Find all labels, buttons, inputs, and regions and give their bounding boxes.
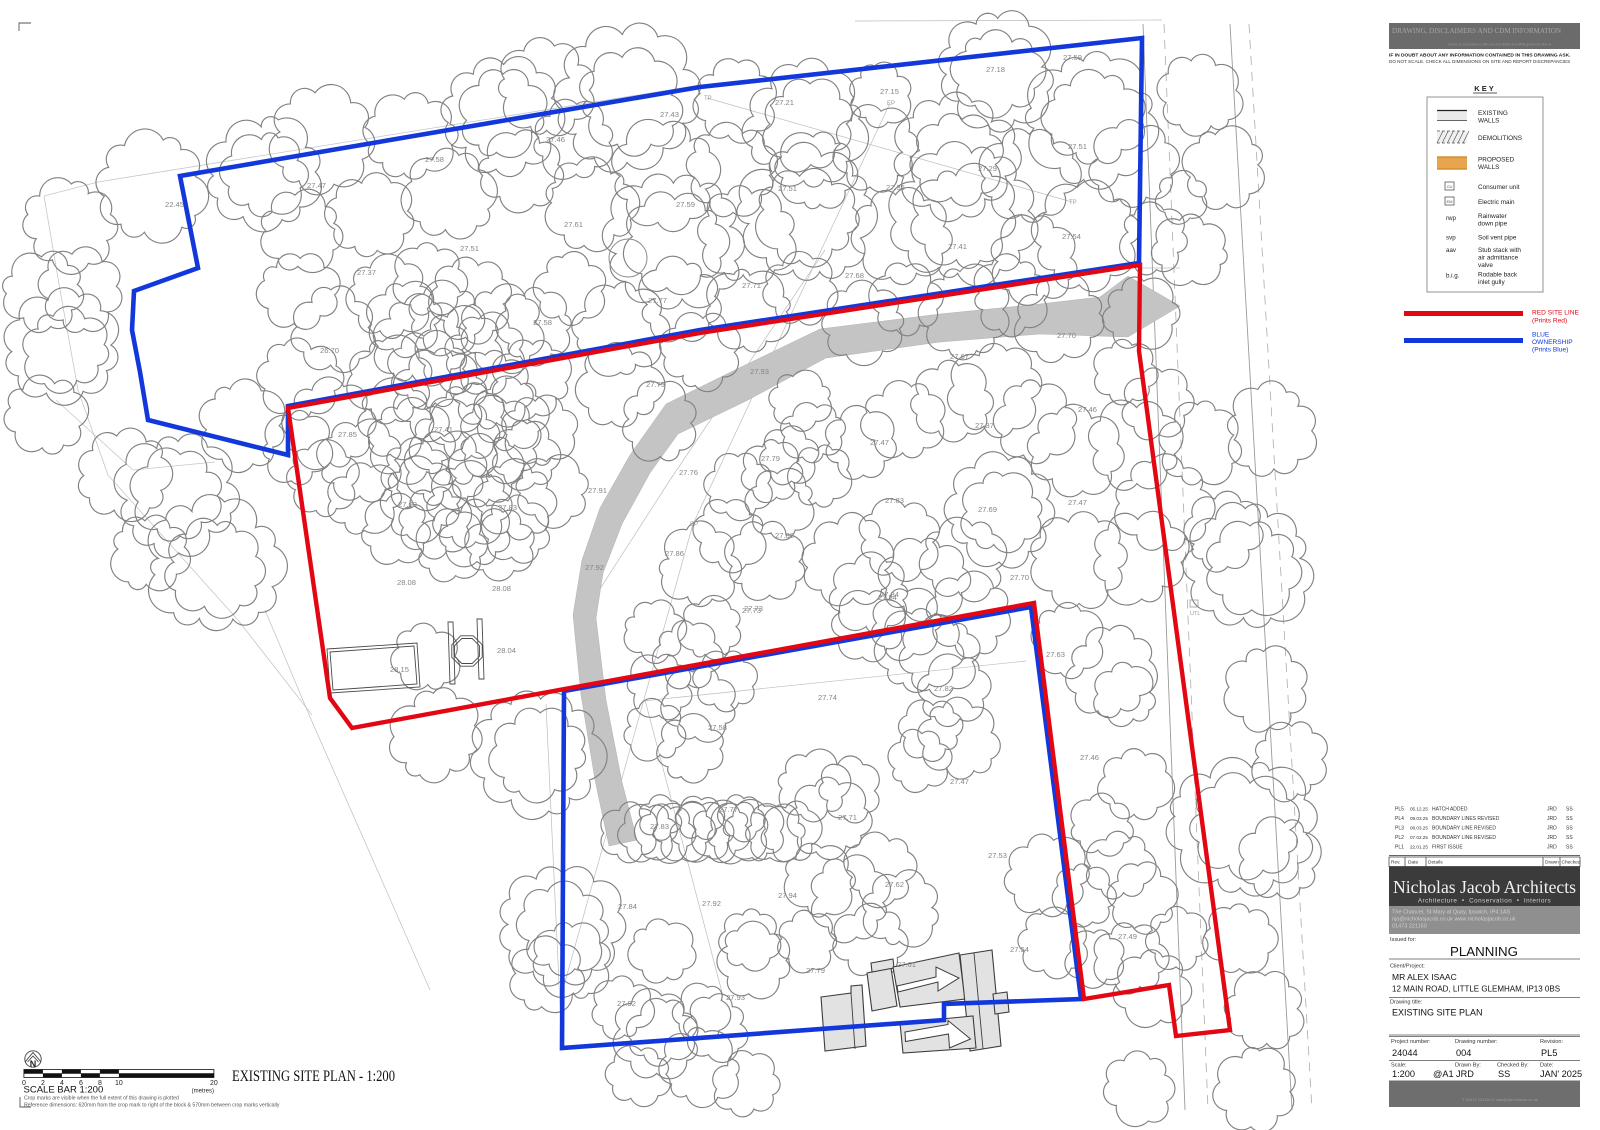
svg-text:26.70: 26.70 <box>320 346 339 355</box>
svg-text:Revision:: Revision: <box>1540 1039 1563 1045</box>
svg-text:27.83: 27.83 <box>498 503 517 512</box>
svg-text:down pipe: down pipe <box>1478 221 1508 228</box>
svg-text:N: N <box>30 1059 37 1069</box>
svg-text:T 01473 221150 E mail@njarch: T 01473 221150 E mail@njarchitects.co.uk <box>1462 1097 1538 1102</box>
svg-text:1:200: 1:200 <box>1392 1069 1415 1079</box>
svg-text:PL3: PL3 <box>1395 826 1404 832</box>
svg-text:27.18: 27.18 <box>986 65 1005 74</box>
svg-text:Issued for:: Issued for: <box>1390 937 1417 943</box>
svg-text:BOUNDARY LINES REVISED: BOUNDARY LINES REVISED <box>1432 816 1500 822</box>
svg-text:27.59: 27.59 <box>1063 53 1082 62</box>
svg-text:27.43: 27.43 <box>660 110 679 119</box>
svg-text:27.88: 27.88 <box>775 531 794 540</box>
svg-text:OWNERSHIP: OWNERSHIP <box>1532 339 1573 346</box>
svg-text:Drawing title:: Drawing title: <box>1390 1000 1423 1006</box>
svg-text:JAN' 2025: JAN' 2025 <box>1540 1069 1582 1079</box>
svg-text:27.79: 27.79 <box>646 380 665 389</box>
svg-text:EXISTING SITE PLAN - 1:200: EXISTING SITE PLAN - 1:200 <box>232 1068 395 1085</box>
svg-text:Project number:: Project number: <box>1391 1039 1431 1045</box>
svg-text:EXISTING SITE PLAN: EXISTING SITE PLAN <box>1392 1008 1483 1018</box>
svg-text:05.12.25: 05.12.25 <box>1410 807 1428 812</box>
svg-text:@A1: @A1 <box>1433 1069 1454 1079</box>
svg-text:27.51: 27.51 <box>778 184 797 193</box>
svg-text:Client/Project:: Client/Project: <box>1390 964 1425 970</box>
svg-text:27.71: 27.71 <box>838 813 857 822</box>
svg-text:MR ALEX ISAAC: MR ALEX ISAAC <box>1392 972 1457 982</box>
svg-text:SS: SS <box>1566 845 1573 851</box>
svg-text:Electric main: Electric main <box>1478 199 1515 206</box>
svg-text:27.79: 27.79 <box>761 454 780 463</box>
svg-text:27.47: 27.47 <box>1068 498 1087 507</box>
svg-text:01473 221150: 01473 221150 <box>1392 924 1427 930</box>
svg-text:JRD: JRD <box>1547 816 1557 822</box>
svg-text:JRD: JRD <box>1456 1069 1474 1079</box>
svg-text:27.58: 27.58 <box>425 155 444 164</box>
svg-text:27.83: 27.83 <box>885 496 904 505</box>
svg-text:27.70: 27.70 <box>1010 573 1029 582</box>
svg-text:27.37: 27.37 <box>975 421 994 430</box>
svg-text:27.53: 27.53 <box>988 851 1007 860</box>
svg-text:Drawing number:: Drawing number: <box>1455 1039 1498 1045</box>
svg-text:22.45: 22.45 <box>165 200 184 209</box>
svg-text:JRD: JRD <box>1547 807 1557 813</box>
svg-text:Consumer unit: Consumer unit <box>1478 184 1520 191</box>
svg-text:IF IN DOUBT ABOUT ANY INFORMAT: IF IN DOUBT ABOUT ANY INFORMATION CONTAI… <box>1389 53 1571 59</box>
svg-text:27.47: 27.47 <box>950 777 969 786</box>
svg-text:BLUE: BLUE <box>1532 332 1550 339</box>
svg-text:PL1: PL1 <box>1395 845 1404 851</box>
svg-text:27.85: 27.85 <box>338 430 357 439</box>
svg-text:FIRST ISSUE: FIRST ISSUE <box>1432 845 1463 851</box>
svg-text:TP: TP <box>1069 200 1077 206</box>
svg-text:27.47: 27.47 <box>307 181 326 190</box>
svg-text:27.77: 27.77 <box>719 805 738 814</box>
svg-text:27.54: 27.54 <box>1010 945 1029 954</box>
svg-text:27.71: 27.71 <box>742 281 761 290</box>
svg-text:27.41: 27.41 <box>434 425 453 434</box>
svg-text:27.58: 27.58 <box>708 723 727 732</box>
svg-text:10: 10 <box>115 1080 123 1087</box>
svg-text:27.68: 27.68 <box>845 271 864 280</box>
svg-text:Date:: Date: <box>1540 1063 1554 1069</box>
svg-text:UTL: UTL <box>1190 611 1200 617</box>
svg-text:SS: SS <box>1566 807 1573 813</box>
svg-text:Checked By:: Checked By: <box>1497 1063 1529 1069</box>
svg-text:DRAWING, DISCLAIMERS AND CDM I: DRAWING, DISCLAIMERS AND CDM INFORMATION <box>1392 27 1562 35</box>
svg-text:EXISTING: EXISTING <box>1478 110 1508 117</box>
svg-text:Details: Details <box>1428 860 1443 866</box>
svg-text:SS: SS <box>1566 826 1573 832</box>
svg-text:27.61: 27.61 <box>897 960 916 969</box>
svg-text:Nicholas Jacob Architects: Nicholas Jacob Architects <box>1393 877 1576 897</box>
svg-text:24044: 24044 <box>1392 1048 1418 1058</box>
svg-text:09.03.25: 09.03.25 <box>1410 816 1428 821</box>
svg-text:PLANNING: PLANNING <box>1450 945 1518 959</box>
svg-text:PL4: PL4 <box>1395 816 1404 822</box>
svg-text:JRD: JRD <box>1547 845 1557 851</box>
svg-text:KEY: KEY <box>1474 84 1495 93</box>
svg-text:20: 20 <box>210 1080 218 1087</box>
svg-text:27.92: 27.92 <box>585 563 604 572</box>
svg-text:27.62: 27.62 <box>885 880 904 889</box>
svg-text:27.83: 27.83 <box>650 822 669 831</box>
svg-text:drawn in accordance with curre: drawn in accordance with current RIBA an… <box>1448 43 1552 47</box>
svg-text:27.29: 27.29 <box>978 164 997 173</box>
svg-text:27.69: 27.69 <box>398 500 417 509</box>
svg-text:b.i.g.: b.i.g. <box>1446 273 1460 280</box>
svg-text:27.46: 27.46 <box>546 135 565 144</box>
svg-text:12 MAIN ROAD, LITTLE GLEMHAM,: 12 MAIN ROAD, LITTLE GLEMHAM, IP13 0BS <box>1392 985 1560 994</box>
svg-text:27.94: 27.94 <box>778 891 797 900</box>
svg-text:SCALE BAR 1:200: SCALE BAR 1:200 <box>24 1085 104 1096</box>
svg-text:27.67: 27.67 <box>950 352 969 361</box>
svg-text:WALLS: WALLS <box>1478 118 1499 125</box>
svg-text:Scale:: Scale: <box>1391 1063 1407 1069</box>
svg-text:(metres): (metres) <box>192 1089 214 1095</box>
svg-text:27.82: 27.82 <box>934 684 953 693</box>
svg-text:PL5: PL5 <box>1395 807 1404 813</box>
svg-text:SS: SS <box>1566 835 1573 841</box>
svg-text:EP: EP <box>690 522 698 528</box>
svg-text:27.37: 27.37 <box>357 268 376 277</box>
svg-text:EP: EP <box>887 101 895 107</box>
svg-text:27.76: 27.76 <box>679 468 698 477</box>
svg-text:27.15: 27.15 <box>880 87 899 96</box>
svg-text:Rodable back: Rodable back <box>1478 272 1518 279</box>
svg-text:nja@nicholasjacob.co.uk www.n: nja@nicholasjacob.co.uk www.nicholasjaco… <box>1392 917 1516 923</box>
svg-text:Rainwater: Rainwater <box>1478 213 1508 220</box>
svg-text:27.21: 27.21 <box>775 98 794 107</box>
svg-text:BOUNDARY LINE REVISED: BOUNDARY LINE REVISED <box>1432 835 1496 841</box>
svg-text:27.58: 27.58 <box>533 318 552 327</box>
svg-text:22.01.25: 22.01.25 <box>1410 845 1428 850</box>
svg-text:27.91: 27.91 <box>588 486 607 495</box>
svg-text:27.73: 27.73 <box>744 604 763 613</box>
svg-text:27.41: 27.41 <box>948 242 967 251</box>
svg-text:PL2: PL2 <box>1395 835 1404 841</box>
svg-text:08.03.25: 08.03.25 <box>1410 826 1428 831</box>
svg-text:BOUNDARY LINE REVISED: BOUNDARY LINE REVISED <box>1432 826 1496 832</box>
svg-text:Architecture • Conservation: Architecture • Conservation • Interiors <box>1418 898 1551 905</box>
svg-text:EM: EM <box>1447 199 1453 204</box>
svg-text:27.69: 27.69 <box>978 505 997 514</box>
svg-text:27.86: 27.86 <box>665 549 684 558</box>
svg-text:WALLS: WALLS <box>1478 164 1499 171</box>
svg-text:27.84: 27.84 <box>618 902 637 911</box>
svg-text:28.08: 28.08 <box>397 578 416 587</box>
svg-text:SS: SS <box>1566 816 1573 822</box>
svg-text:valve: valve <box>1478 262 1493 269</box>
svg-text:27.63: 27.63 <box>1046 650 1065 659</box>
svg-text:DO NOT SCALE. CHECK ALL DIMENS: DO NOT SCALE. CHECK ALL DIMENSIONS ON SI… <box>1389 59 1570 64</box>
svg-text:28.04: 28.04 <box>497 646 516 655</box>
svg-text:(Prints Blue): (Prints Blue) <box>1532 347 1568 354</box>
svg-text:HATCH ADDED: HATCH ADDED <box>1432 807 1468 813</box>
svg-text:The Chancel, St Mary at Quay,: The Chancel, St Mary at Quay, Ipswich, I… <box>1392 910 1511 916</box>
svg-text:Checked: Checked <box>1562 860 1581 866</box>
svg-text:PROPOSED: PROPOSED <box>1478 157 1515 164</box>
svg-text:Reference dimensions: 620mm fr: Reference dimensions: 620mm from the cro… <box>24 1103 280 1109</box>
svg-text:JRD: JRD <box>1547 826 1557 832</box>
svg-text:27.59: 27.59 <box>676 200 695 209</box>
svg-text:TP: TP <box>704 96 712 102</box>
svg-text:inlet gully: inlet gully <box>1478 279 1505 286</box>
svg-text:27.84: 27.84 <box>880 590 899 599</box>
svg-text:aav: aav <box>1446 247 1457 254</box>
svg-text:27.93: 27.93 <box>750 367 769 376</box>
svg-text:JRD: JRD <box>1547 835 1557 841</box>
svg-text:Rev.: Rev. <box>1391 860 1401 866</box>
svg-text:Stub stack with: Stub stack with <box>1478 247 1521 254</box>
svg-text:27.93: 27.93 <box>726 993 745 1002</box>
svg-text:CU: CU <box>1447 184 1453 189</box>
svg-text:27.54: 27.54 <box>1062 232 1081 241</box>
svg-text:Crop marks are visible when th: Crop marks are visible when the full ext… <box>24 1096 179 1102</box>
svg-text:(Prints Red): (Prints Red) <box>1532 318 1567 325</box>
svg-text:28.15: 28.15 <box>390 665 409 674</box>
svg-text:27.92: 27.92 <box>702 899 721 908</box>
svg-text:DEMOLITIONS: DEMOLITIONS <box>1478 135 1522 142</box>
svg-text:004: 004 <box>1456 1048 1471 1058</box>
svg-text:27.46: 27.46 <box>1078 405 1097 414</box>
svg-text:27.47: 27.47 <box>870 438 889 447</box>
svg-text:28.08: 28.08 <box>492 584 511 593</box>
svg-text:27.79: 27.79 <box>806 966 825 975</box>
svg-text:27.92: 27.92 <box>617 999 636 1008</box>
svg-text:rwp: rwp <box>1446 215 1457 222</box>
svg-text:Soil vent pipe: Soil vent pipe <box>1478 235 1517 242</box>
svg-text:PL5: PL5 <box>1541 1048 1557 1058</box>
svg-text:Date: Date <box>1408 860 1418 866</box>
svg-text:27.49: 27.49 <box>1118 932 1137 941</box>
svg-text:27.74: 27.74 <box>818 693 837 702</box>
svg-text:svp: svp <box>1446 235 1456 242</box>
svg-text:air admittance: air admittance <box>1478 255 1519 262</box>
svg-text:RED SITE LINE: RED SITE LINE <box>1532 310 1580 317</box>
svg-text:27.77: 27.77 <box>648 296 667 305</box>
svg-text:27.51: 27.51 <box>460 244 479 253</box>
svg-text:Drawn By:: Drawn By: <box>1455 1063 1481 1069</box>
svg-text:27.51: 27.51 <box>1068 142 1087 151</box>
svg-text:07.02.25: 07.02.25 <box>1410 835 1428 840</box>
svg-text:27.61: 27.61 <box>564 220 583 229</box>
svg-text:27.35: 27.35 <box>886 183 905 192</box>
svg-text:Drawn: Drawn <box>1545 860 1559 866</box>
svg-text:27.46: 27.46 <box>1080 753 1099 762</box>
svg-text:SS: SS <box>1498 1069 1510 1079</box>
svg-text:27.70: 27.70 <box>1057 331 1076 340</box>
